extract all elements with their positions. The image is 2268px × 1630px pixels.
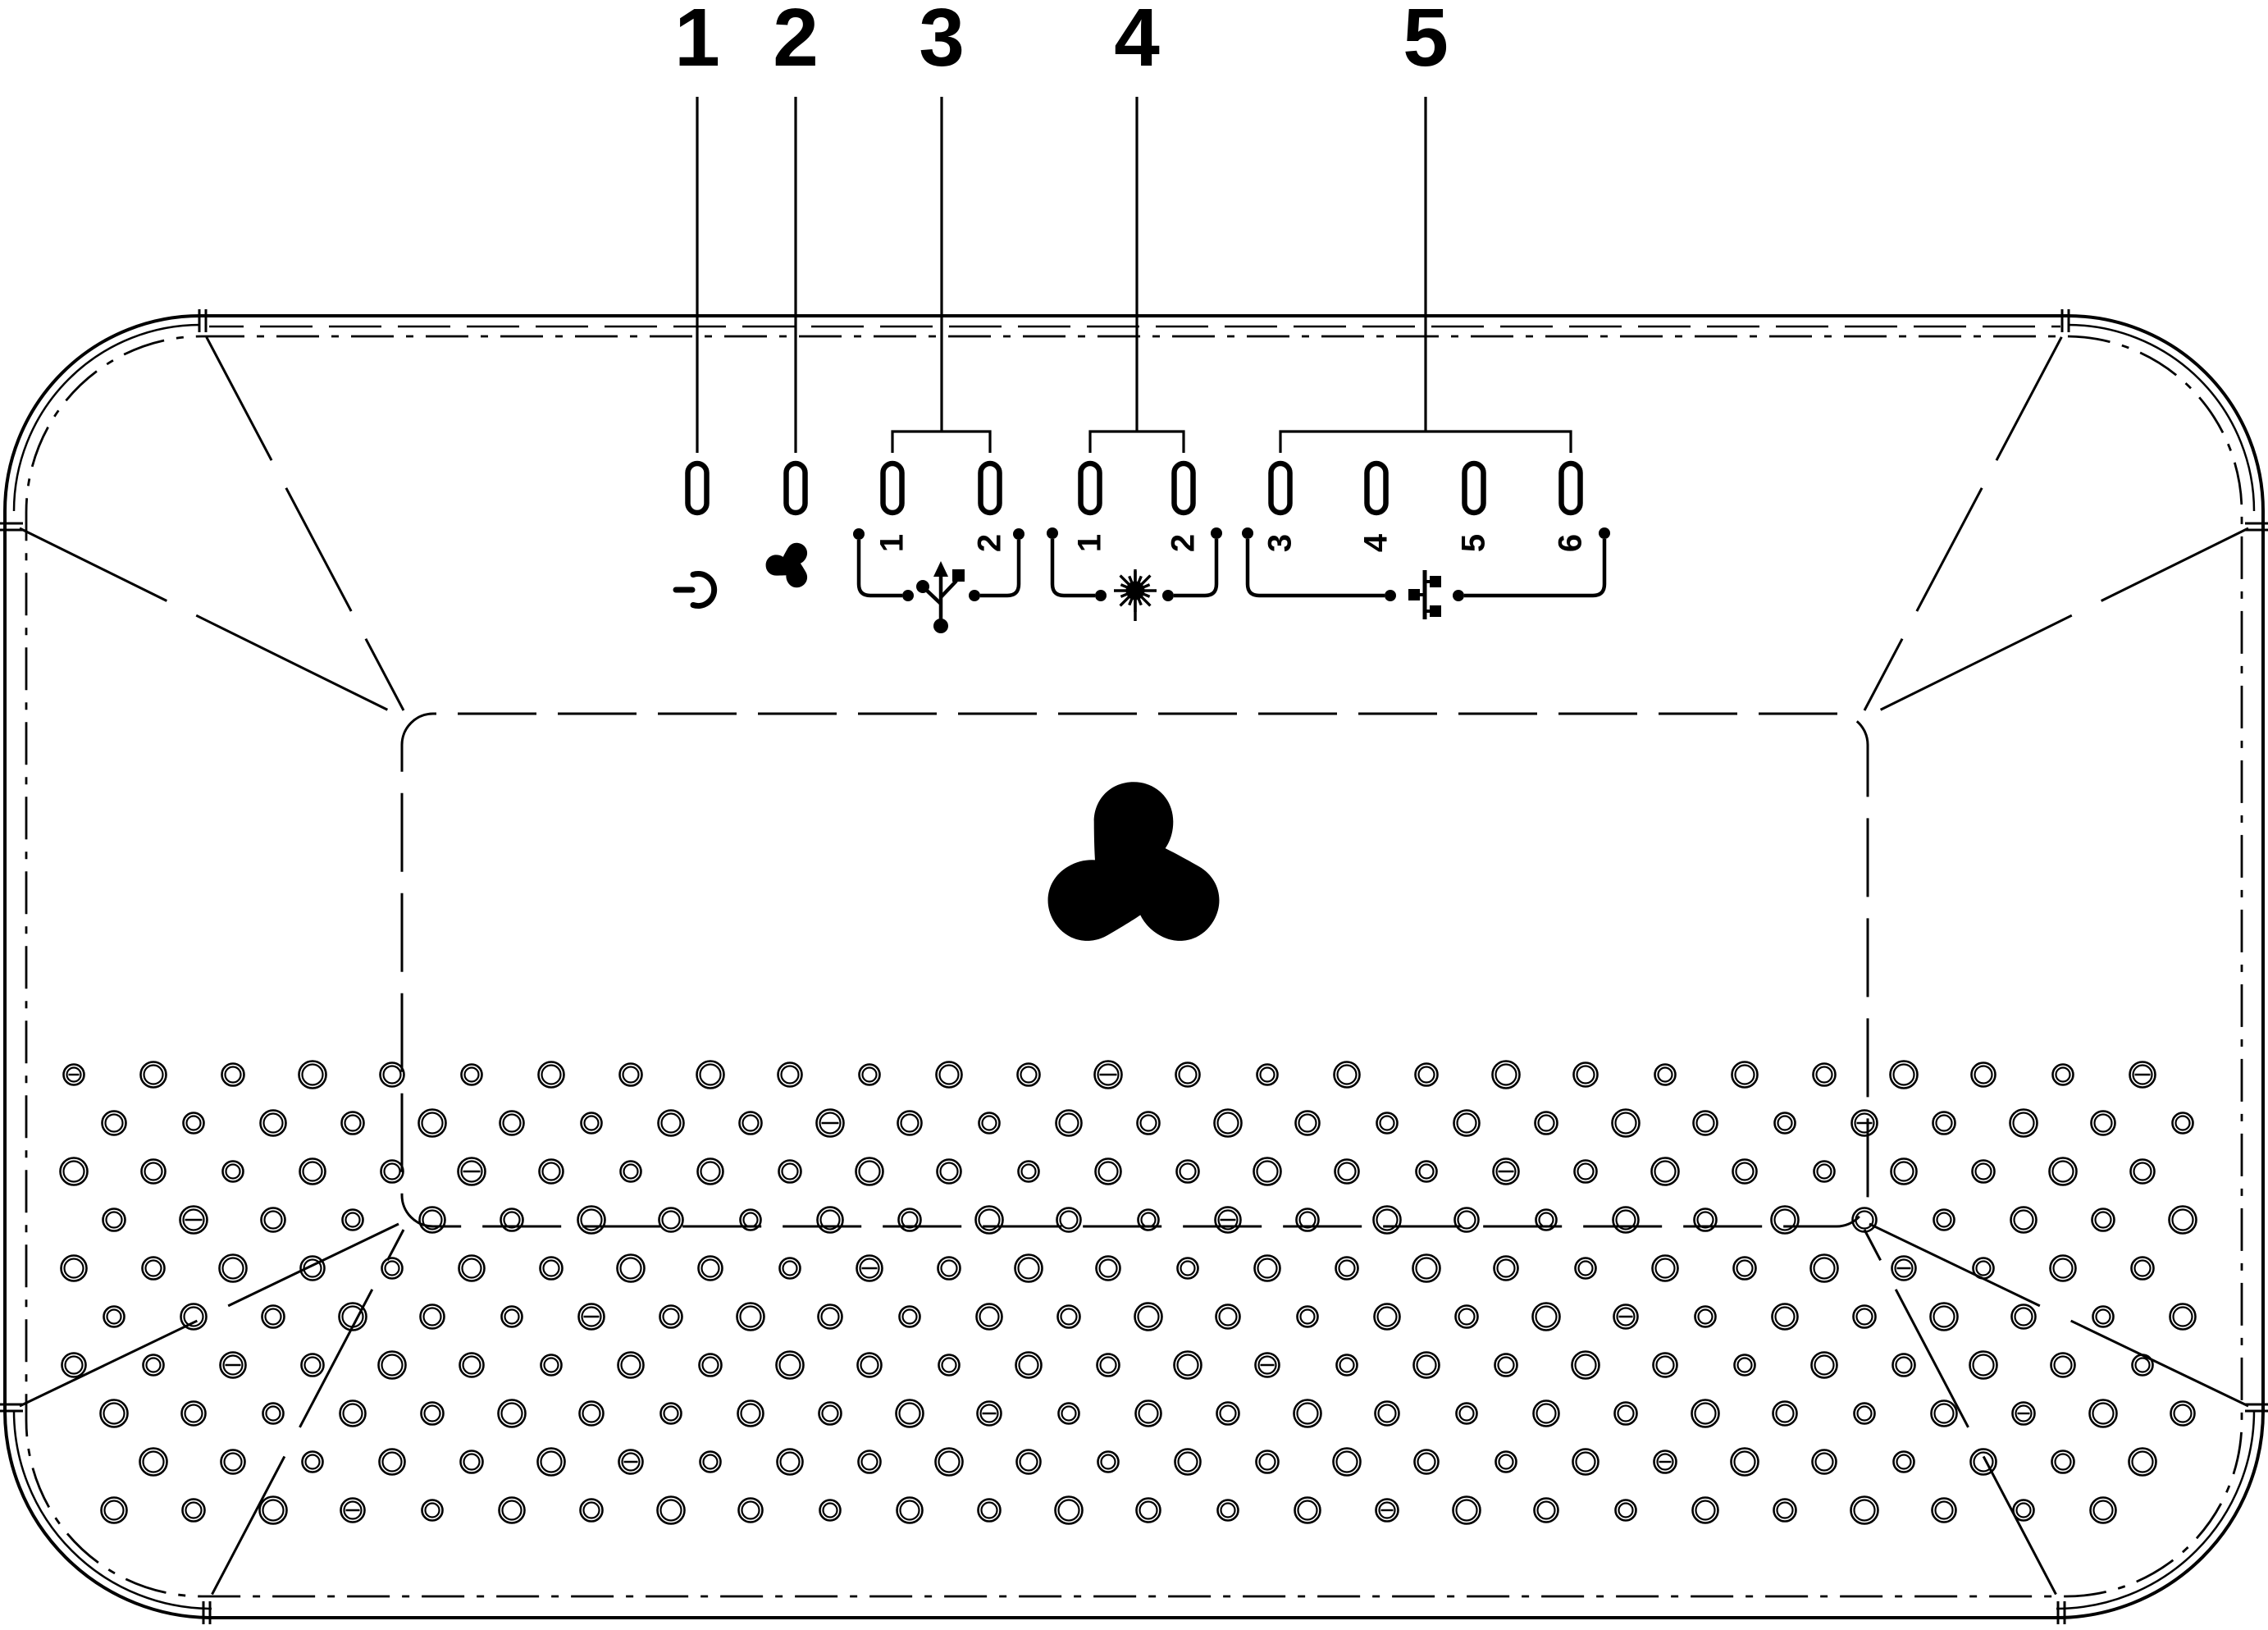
callout-number-5: 5 [1403, 0, 1449, 80]
power-icon [676, 574, 714, 606]
corner-slope-edges [20, 330, 2248, 1605]
led-number-label: 2 [972, 534, 1009, 552]
callout-bracket [892, 431, 990, 453]
led-capsule [1081, 463, 1100, 513]
led-capsule [981, 463, 1000, 513]
device-body-outline [0, 309, 2268, 1624]
bracket-dot [1599, 527, 1610, 539]
led-capsule [1175, 463, 1193, 513]
led-capsule [1367, 463, 1386, 513]
bracket-dot [853, 528, 865, 540]
led-number-label: 4 [1358, 534, 1395, 552]
ethernet-icon [1408, 570, 1441, 619]
device-drawing [0, 0, 2268, 1630]
bracket-dot [1013, 528, 1024, 540]
tangent-ticks [0, 309, 2268, 1624]
led-number-label: 6 [1553, 534, 1590, 552]
bracket-dot [902, 590, 914, 601]
bracket-dot [969, 590, 980, 601]
callout-number-3: 3 [919, 0, 965, 80]
usb-icon [916, 561, 965, 633]
ventilation-grid [61, 1062, 2197, 1524]
bracket-dot [1162, 590, 1174, 601]
bracket-dot [1095, 590, 1107, 601]
callout-bracket [1280, 431, 1571, 453]
callout-lines [697, 97, 1571, 453]
led-number-label: 1 [874, 534, 911, 552]
device-top-view-diagram: 1212345612345 [0, 0, 2268, 1630]
callout-bracket [1090, 431, 1184, 453]
hidden-edge-outline [26, 336, 2242, 1596]
led-capsule [688, 463, 707, 513]
led-capsule [1562, 463, 1581, 513]
mesh-network-icon [756, 532, 826, 599]
bracket-dot [1242, 527, 1253, 539]
bracket-dot [1385, 590, 1396, 601]
brand-logo [1034, 782, 1238, 962]
bracket-dot [1211, 527, 1222, 539]
led-capsule [1465, 463, 1484, 513]
bracket-dot [1453, 590, 1464, 601]
led-capsule [883, 463, 902, 513]
icon-row [676, 532, 1441, 633]
led-number-label: 1 [1072, 534, 1109, 552]
port-group-brackets [853, 527, 1610, 601]
led-capsule [1271, 463, 1290, 513]
bracket-dot [1047, 527, 1058, 539]
callout-number-1: 1 [674, 0, 720, 80]
led-number-label: 2 [1166, 534, 1202, 552]
led-number-label: 3 [1262, 534, 1299, 552]
callout-number-2: 2 [773, 0, 819, 80]
starburst-icon [1114, 569, 1157, 621]
led-row [688, 463, 1581, 513]
callout-number-4: 4 [1114, 0, 1160, 80]
led-capsule [787, 463, 805, 513]
led-number-label: 5 [1456, 534, 1493, 552]
